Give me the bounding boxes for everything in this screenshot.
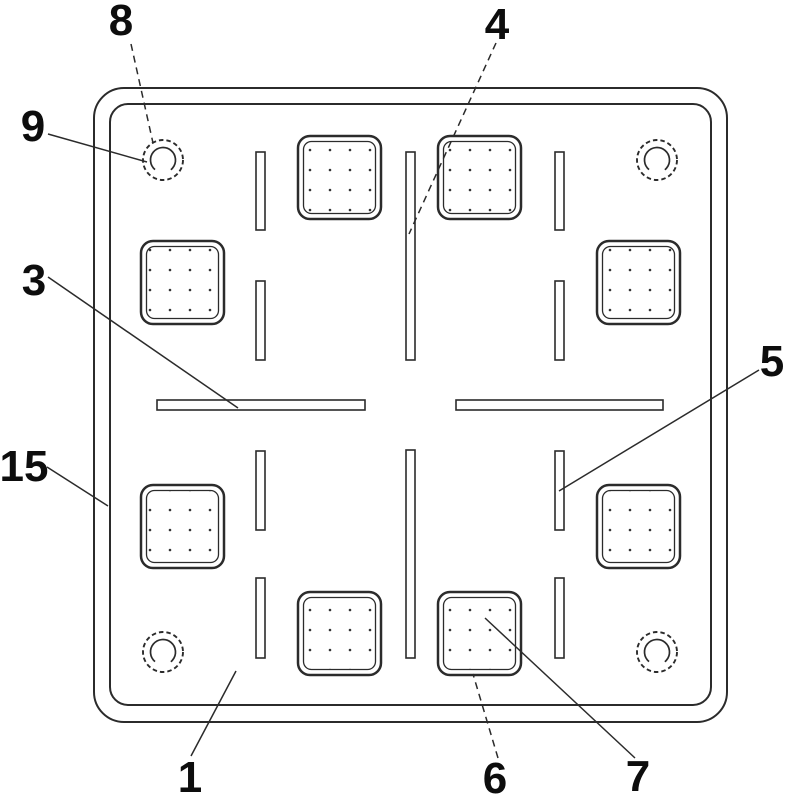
corner-hole-top-left (143, 140, 183, 180)
leader-line-8 (131, 44, 153, 143)
pad-square-top-center-right (438, 136, 521, 219)
slot-left-3 (256, 451, 265, 530)
pad-square-top-center-left (298, 136, 381, 219)
corner-hole-top-right (637, 140, 677, 180)
hole-outer-circle (143, 632, 183, 672)
pad-inner-dotted-face (147, 491, 219, 563)
ref-label-4: 4 (485, 3, 509, 47)
pad-inner-dotted-face (147, 247, 219, 319)
pad-inner-dotted-face (444, 142, 516, 214)
ref-label-3: 3 (22, 259, 46, 303)
slot-left-4 (256, 578, 265, 658)
corner-hole-bottom-right (637, 632, 677, 672)
leader-line-9 (48, 134, 147, 162)
slot-horizontal-left (157, 400, 365, 410)
ref-label-7: 7 (626, 755, 650, 799)
slot-center-bottom (406, 450, 415, 658)
slot-left-2 (256, 281, 265, 360)
ref-label-5: 5 (760, 340, 784, 384)
pad-square-lower-right (597, 485, 680, 568)
ref-label-9: 9 (21, 105, 45, 149)
pad-inner-dotted-face (444, 598, 516, 670)
ref-label-6: 6 (483, 757, 507, 800)
pad-inner-dotted-face (603, 247, 675, 319)
leader-line-6 (473, 674, 498, 758)
hole-outer-circle (637, 140, 677, 180)
ref-label-1: 1 (178, 756, 202, 800)
hole-outer-circle (143, 140, 183, 180)
drawing-canvas (0, 0, 787, 800)
hole-outer-circle (637, 632, 677, 672)
ref-label-8: 8 (109, 0, 133, 43)
pad-square-upper-left (141, 241, 224, 324)
hole-inner-circle (639, 142, 674, 177)
leader-line-1 (191, 671, 236, 756)
slot-right-4 (555, 578, 564, 658)
hole-inner-circle (145, 142, 180, 177)
slot-left-1 (256, 152, 265, 230)
pad-square-bottom-center-left (298, 592, 381, 675)
pad-inner-dotted-face (603, 491, 675, 563)
patent-figure: 8 9 3 15 1 6 7 4 5 (0, 0, 787, 800)
hole-inner-circle (639, 634, 674, 669)
leader-line-15 (47, 467, 108, 506)
pad-inner-dotted-face (304, 598, 376, 670)
slot-horizontal-right (456, 400, 663, 410)
pad-square-lower-left (141, 485, 224, 568)
slot-center-top (406, 152, 415, 360)
leader-line-5 (559, 370, 759, 491)
slot-right-2 (555, 281, 564, 360)
pad-inner-dotted-face (304, 142, 376, 214)
pad-square-bottom-center-right (438, 592, 521, 675)
pad-square-upper-right (597, 241, 680, 324)
ref-label-15: 15 (0, 445, 48, 489)
corner-hole-bottom-left (143, 632, 183, 672)
slot-right-1 (555, 152, 564, 230)
hole-inner-circle (145, 634, 180, 669)
